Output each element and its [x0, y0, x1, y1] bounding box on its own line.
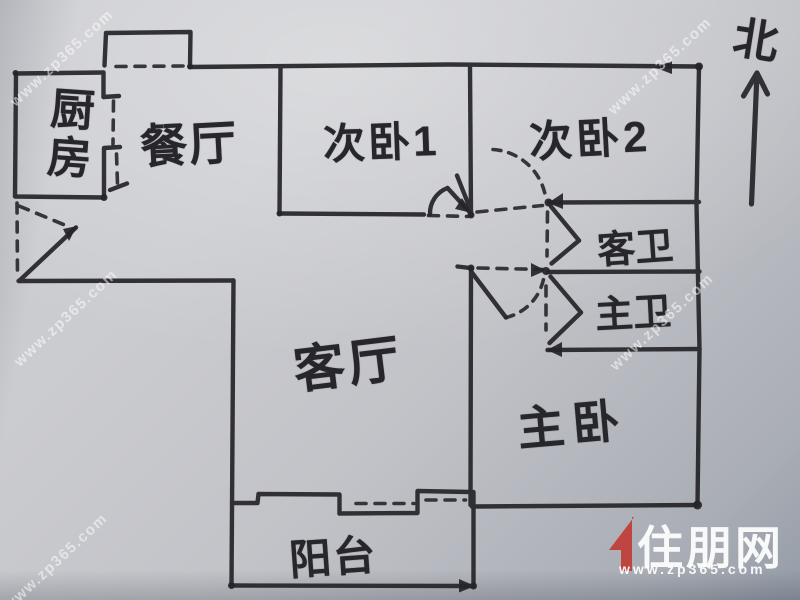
wall-bedroom1-right: [470, 66, 471, 215]
balcony-slider-a: [232, 494, 340, 514]
ink-blob: [468, 212, 475, 219]
room-label-kitchen: 厨房: [31, 84, 102, 184]
wall-bedroom1-bottom: [280, 214, 425, 215]
room-label-living: 客厅: [289, 317, 407, 404]
ink-blob: [468, 265, 475, 272]
door-masterbath-leaf2: [550, 313, 582, 344]
wall-bedroom1-left: [280, 68, 281, 214]
kitchen-door-dashed2: [117, 154, 118, 184]
room-label-dining: 餐厅: [138, 103, 239, 177]
north-arrow-icon: [744, 73, 768, 204]
door-guestbath-leaf2: [552, 241, 580, 264]
corridor-opening-dashed: [477, 206, 543, 213]
door-bedroom1-opening-dashed: [429, 216, 469, 217]
kitchen-door-jamb-bottom: [104, 147, 120, 148]
wall-top-bay: [105, 32, 191, 67]
door-guestbath-leaf: [551, 207, 579, 241]
room-label-balcony: 阳台: [287, 521, 379, 588]
ink-blob: [101, 194, 108, 201]
bath-hall-opening-dashed: [547, 212, 548, 256]
room-label-bedroom1: 次卧1: [322, 107, 440, 172]
kitchen-door-jamb-top: [104, 96, 120, 97]
wall-top-main: [190, 65, 699, 68]
kitchen-door-dashed: [113, 101, 114, 144]
room-label-bedroom2: 次卧2: [527, 102, 652, 170]
door-masterbath-leaf: [551, 277, 582, 313]
wall-balcony-bottom: [232, 586, 473, 587]
entry-leaf-dashed: [19, 206, 64, 225]
ink-blob: [187, 64, 193, 70]
door-bedroom1-arc: [430, 188, 448, 214]
wall-master-bottom: [472, 505, 698, 507]
wall-bedroom2-bottom: [549, 202, 700, 203]
ink-blob: [13, 70, 19, 76]
room-label-master-bedroom: 主卧: [514, 381, 630, 459]
ink-blob: [693, 501, 702, 510]
floorplan-photo: 厨房 餐厅 次卧1 次卧2 客卫 主卫 客厅 主卧 阳台 北 www.zp365…: [0, 0, 800, 600]
door-master-arc-dashed: [506, 272, 545, 318]
door-master-leaf: [472, 272, 507, 318]
kitchen-door-hook: [110, 184, 127, 191]
room-label-guest-bath: 客卫: [595, 214, 675, 274]
entry-opening-dashed: [17, 203, 18, 277]
ink-blob: [470, 583, 477, 590]
ink-blob: [228, 582, 235, 589]
bay-window-dashed: [116, 66, 184, 67]
site-logo: 住朋网 www.zp365.com: [606, 512, 796, 582]
wall-master-left: [471, 268, 472, 505]
ink-blob: [545, 199, 553, 207]
ink-blob: [695, 63, 703, 71]
wall-living-left: [232, 281, 234, 586]
wall-entry-bottom: [19, 281, 234, 282]
ink-blob: [542, 267, 550, 275]
logo-url-text: www.zp365.com: [619, 561, 766, 577]
ink-blob: [277, 211, 283, 217]
